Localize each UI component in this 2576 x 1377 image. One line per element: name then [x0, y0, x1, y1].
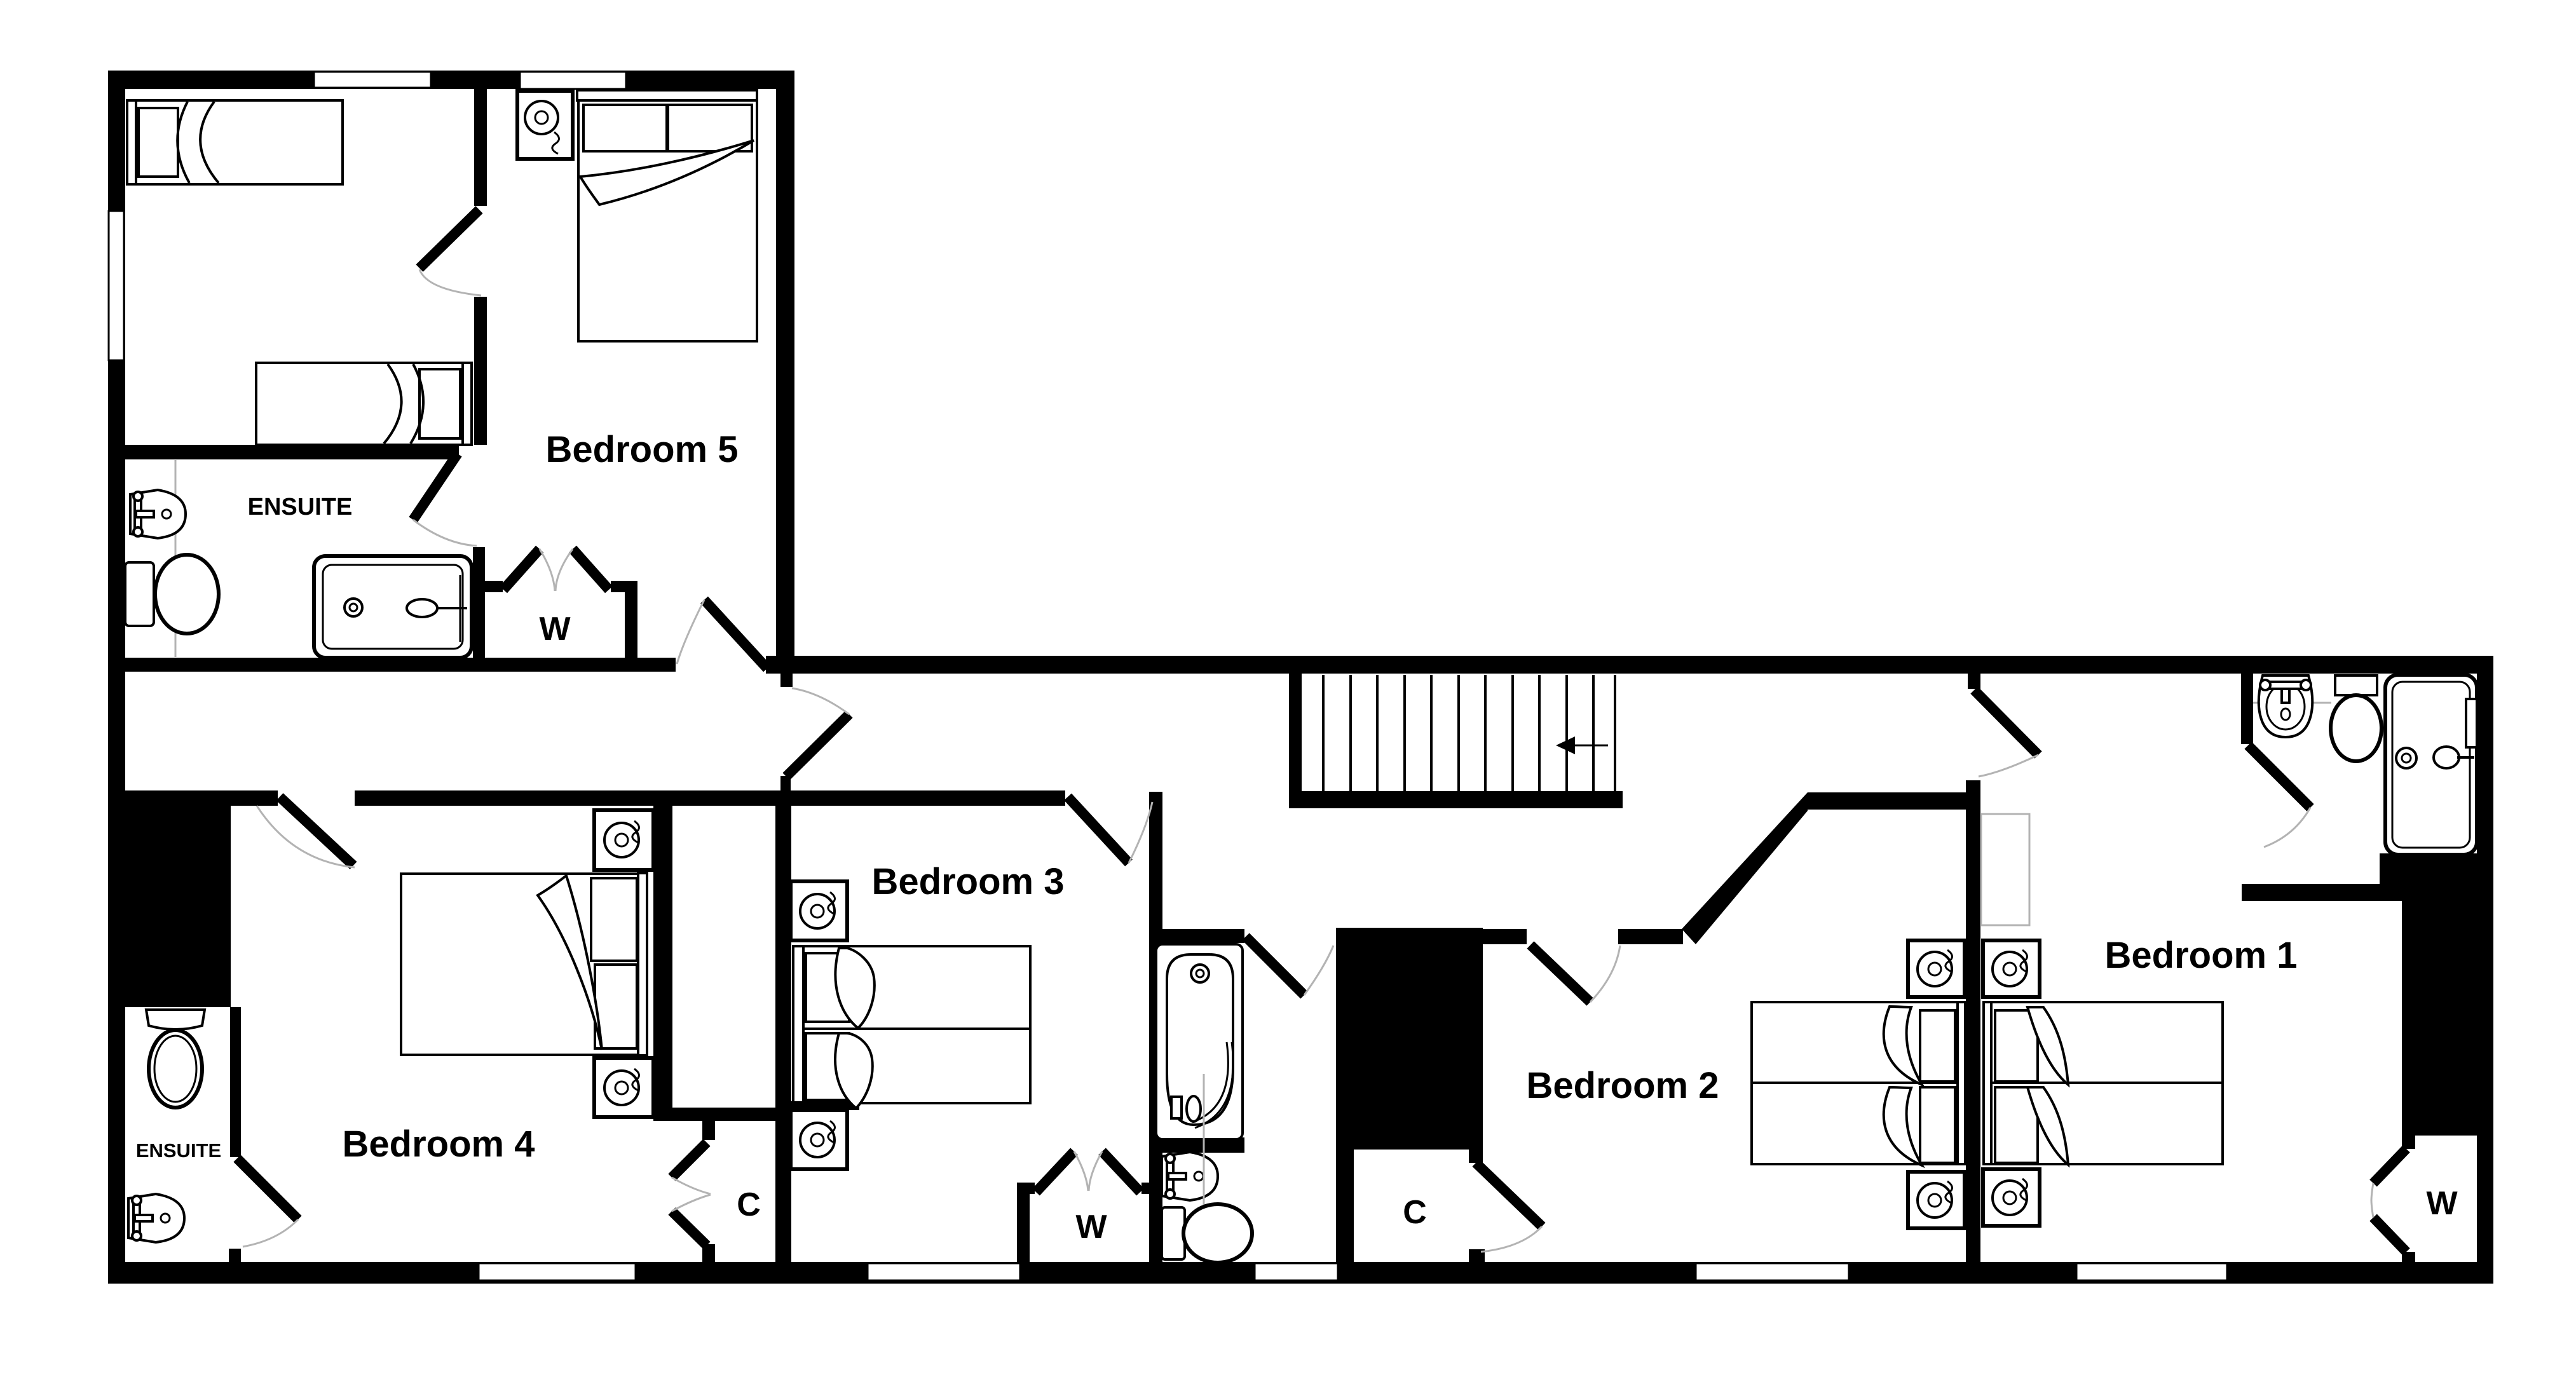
- svg-text:Bedroom 1: Bedroom 1: [2105, 935, 2298, 976]
- svg-text:ENSUITE: ENSUITE: [248, 494, 353, 520]
- svg-text:ENSUITE: ENSUITE: [136, 1139, 221, 1162]
- svg-text:Bedroom 2: Bedroom 2: [1527, 1065, 1719, 1106]
- svg-text:C: C: [737, 1186, 761, 1223]
- svg-text:Bedroom 4: Bedroom 4: [343, 1123, 535, 1165]
- svg-text:W: W: [1075, 1209, 1107, 1245]
- svg-text:W: W: [539, 611, 571, 648]
- svg-text:Bedroom 3: Bedroom 3: [872, 861, 1065, 902]
- svg-text:Bedroom 5: Bedroom 5: [546, 429, 739, 470]
- svg-text:C: C: [1403, 1194, 1427, 1231]
- svg-text:W: W: [2426, 1185, 2458, 1222]
